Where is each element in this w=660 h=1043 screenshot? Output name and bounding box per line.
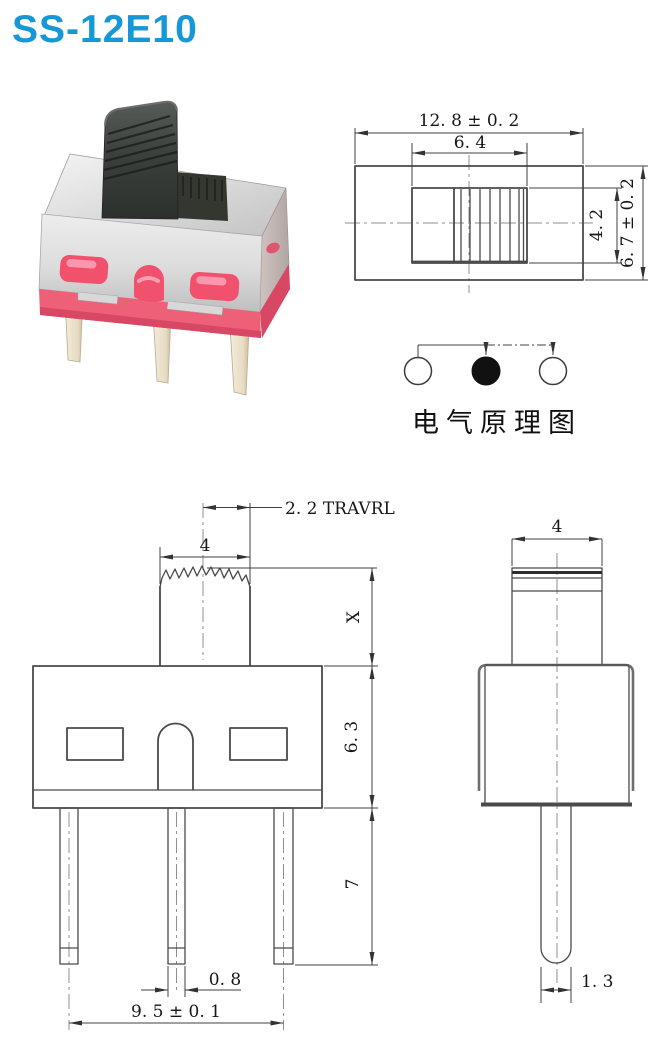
- page-title: SS-12E10: [12, 8, 198, 52]
- side-view-body: [479, 665, 633, 805]
- front-view-right-window: [230, 728, 287, 760]
- front-view-body: [33, 666, 322, 808]
- dim-label-knob-height: X: [344, 610, 364, 623]
- dim-label-side-knob-width: 4: [552, 517, 563, 537]
- side-view-pin: [541, 806, 571, 963]
- dim-label-total-height: 6. 7 ± 0. 2: [618, 178, 638, 268]
- dim-travel: 2. 2 TRAVRL: [203, 499, 395, 584]
- front-view-left-window: [67, 728, 123, 760]
- front-view-centerlines: [69, 503, 284, 1030]
- schematic-pole-middle-filled: [472, 357, 500, 385]
- dim-label-body-height: 6. 3: [342, 721, 362, 753]
- front-view-knob: [160, 566, 250, 666]
- dim-pin-span: 9. 5 ± 0. 1: [69, 1002, 284, 1023]
- dim-label-pin-length: 7: [343, 879, 363, 890]
- front-view-drawing: 2. 2 TRAVRL 4 X 6. 3 7 0. 8: [25, 490, 403, 1040]
- circuit-schematic: 电气原理图: [390, 325, 620, 445]
- dim-label-travel: 2. 2 TRAVRL: [285, 499, 395, 519]
- schematic-label: 电气原理图: [412, 408, 582, 439]
- dim-label-knob-width: 4: [200, 536, 211, 556]
- schematic-pole-left: [405, 358, 432, 385]
- top-view-drawing: 12. 8 ± 0. 2 6. 4 4. 2 6. 7 ± 0. 2: [330, 95, 660, 310]
- dim-label-pin-thickness: 1. 3: [581, 972, 613, 992]
- side-view-drawing: 4 1. 3: [448, 495, 660, 1015]
- dim-label-slot-height: 4. 2: [587, 209, 607, 241]
- dim-label-pin-width: 0. 8: [209, 970, 241, 990]
- top-view-knob: [454, 188, 524, 263]
- schematic-wiring: [418, 345, 553, 357]
- product-photo: [18, 88, 318, 408]
- dim-label-slot-width: 6. 4: [454, 133, 486, 153]
- dim-pin-thickness: 1. 3: [541, 967, 613, 1003]
- dim-pin-width: 0. 8: [141, 966, 241, 997]
- dim-label-total-width: 12. 8 ± 0. 2: [419, 111, 520, 131]
- dim-label-pin-span: 9. 5 ± 0. 1: [131, 1002, 221, 1022]
- schematic-pole-right: [540, 358, 567, 385]
- dim-top-slot-height: 4. 2: [529, 188, 622, 263]
- photo-slider-knob: [102, 102, 228, 221]
- dim-front-knob-width: 4: [160, 536, 250, 584]
- datasheet-page: SS-12E10: [0, 0, 660, 1043]
